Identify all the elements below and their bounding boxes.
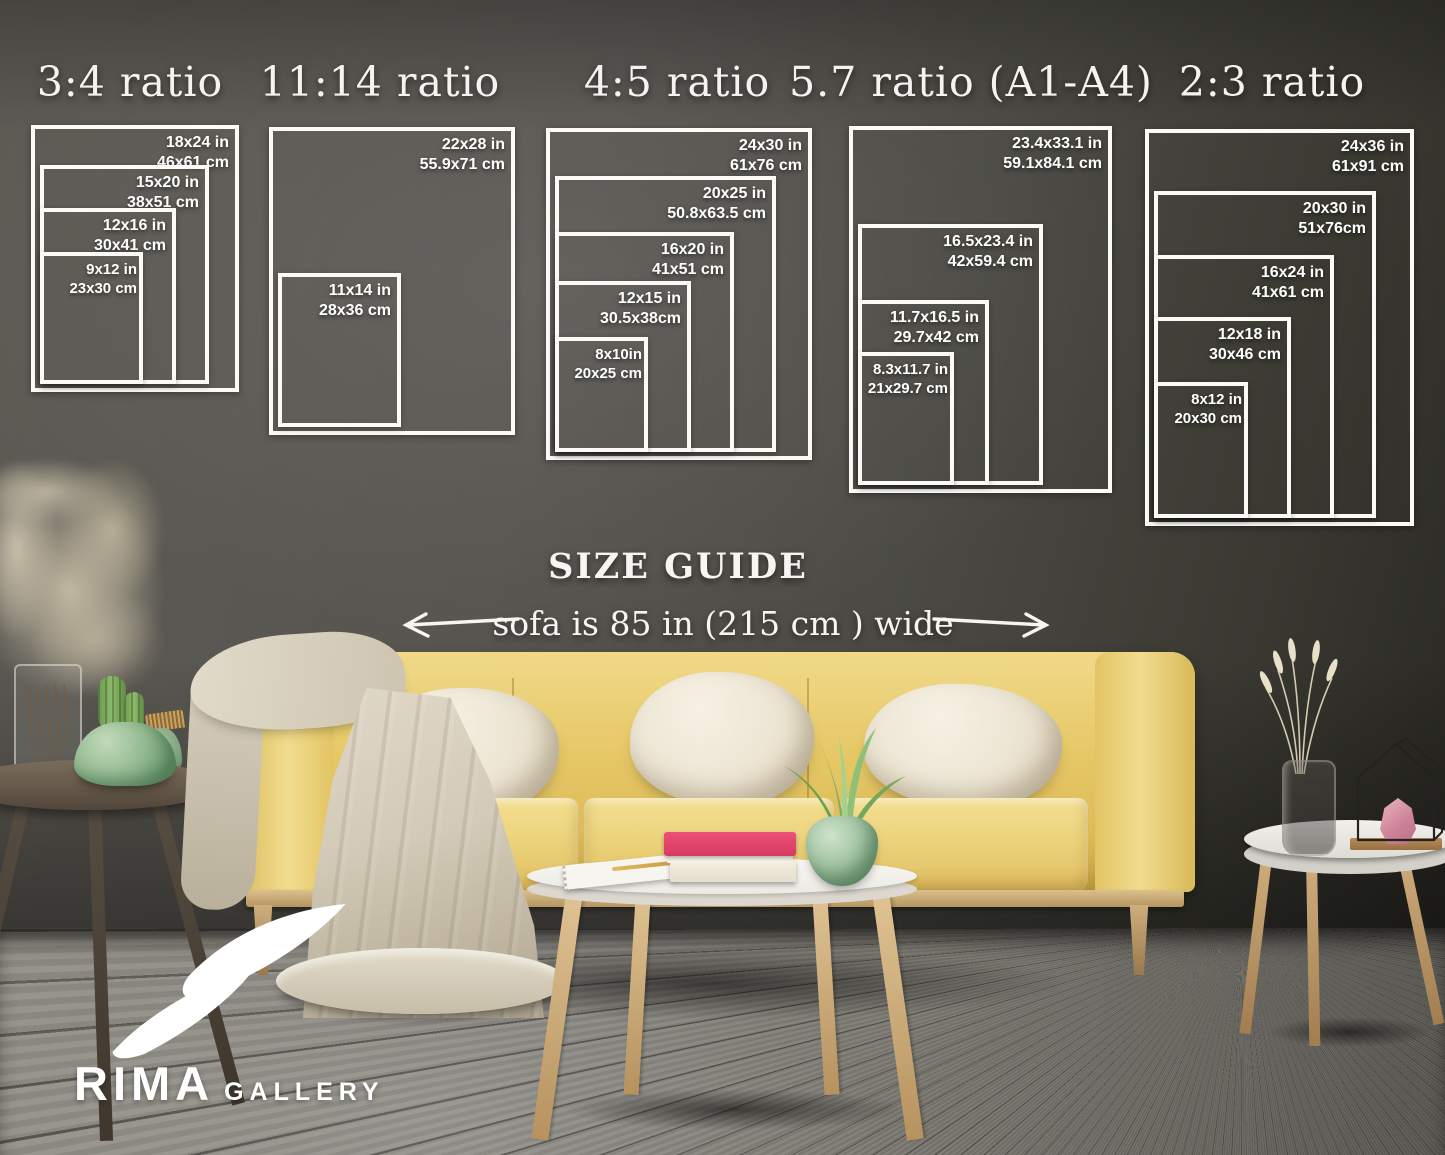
size-label: 20x30 in 51x76cm bbox=[1298, 199, 1366, 240]
size-label-inches: 8x12 in bbox=[1174, 390, 1242, 409]
size-label: 20x25 in 50.8x63.5 cm bbox=[667, 184, 766, 225]
ratio-heading: 5.7 ratio (A1-A4) bbox=[789, 58, 1153, 110]
size-label-inches: 11.7x16.5 in bbox=[890, 308, 979, 328]
size-label: 8.3x11.7 in 21x29.7 cm bbox=[868, 360, 948, 398]
size-label-inches: 18x24 in bbox=[157, 133, 229, 153]
size-label-cm: 55.9x71 cm bbox=[420, 155, 505, 175]
size-label-inches: 8x10in bbox=[574, 345, 642, 364]
size-label-cm: 50.8x63.5 cm bbox=[667, 204, 766, 224]
size-label: 16x20 in 41x51 cm bbox=[652, 240, 724, 281]
logo-suffix-text: GALLERY bbox=[224, 1078, 385, 1107]
wheat-stalks bbox=[1240, 636, 1360, 776]
size-label-inches: 12x15 in bbox=[600, 289, 681, 309]
width-arrows bbox=[398, 606, 1054, 646]
ratio-group: 23.4x33.1 in 59.1x84.1 cm 16.5x23.4 in 4… bbox=[849, 126, 1112, 493]
book bbox=[664, 832, 796, 856]
brand-logo: RIMA GALLERY bbox=[68, 898, 538, 1108]
size-frame: 9x12 in 23x30 cm bbox=[40, 252, 143, 384]
ratio-heading: 3:4 ratio bbox=[37, 58, 223, 110]
size-frame: 8x10in 20x25 cm bbox=[555, 337, 648, 452]
wire-house-frame bbox=[1348, 736, 1444, 848]
size-frame: 8.3x11.7 in 21x29.7 cm bbox=[858, 352, 954, 485]
size-label: 12x16 in 30x41 cm bbox=[94, 216, 166, 257]
size-label-cm: 41x61 cm bbox=[1252, 283, 1324, 303]
pampas-grass bbox=[0, 458, 165, 698]
size-label: 12x15 in 30.5x38cm bbox=[600, 289, 681, 330]
size-label-cm: 21x29.7 cm bbox=[868, 379, 948, 398]
size-label-cm: 61x76 cm bbox=[730, 156, 802, 176]
size-label: 9x12 in 23x30 cm bbox=[69, 260, 137, 298]
ratio-group: 18x24 in 46x61 cm 15x20 in 38x51 cm 12x1… bbox=[31, 125, 239, 392]
ratio-group: 24x36 in 61x91 cm 20x30 in 51x76cm 16x24… bbox=[1145, 129, 1414, 526]
size-label-cm: 42x59.4 cm bbox=[943, 252, 1033, 272]
size-label-inches: 8.3x11.7 in bbox=[868, 360, 948, 379]
size-label-inches: 16x20 in bbox=[652, 240, 724, 260]
size-label-inches: 12x16 in bbox=[94, 216, 166, 236]
size-label-inches: 16x24 in bbox=[1252, 263, 1324, 283]
size-label-cm: 20x25 cm bbox=[574, 364, 642, 383]
size-label: 24x36 in 61x91 cm bbox=[1332, 137, 1404, 178]
size-label-inches: 16.5x23.4 in bbox=[943, 232, 1033, 252]
logo-swoosh-icon bbox=[104, 902, 354, 1060]
coffee-table-shadow bbox=[505, 1082, 965, 1137]
size-label: 11.7x16.5 in 29.7x42 cm bbox=[890, 308, 979, 349]
size-label-cm: 23x30 cm bbox=[69, 279, 137, 298]
book bbox=[670, 860, 796, 882]
size-frame: 8x12 in 20x30 cm bbox=[1154, 382, 1248, 518]
ratio-heading: 2:3 ratio bbox=[1179, 58, 1365, 110]
dried-stems bbox=[26, 684, 68, 770]
size-label-cm: 30x46 cm bbox=[1209, 345, 1281, 365]
glass-bottle-vase bbox=[1282, 760, 1336, 856]
size-label-cm: 28x36 cm bbox=[319, 301, 391, 321]
right-arrow-icon bbox=[934, 614, 1046, 636]
size-label: 8x12 in 20x30 cm bbox=[1174, 390, 1242, 428]
size-label-inches: 9x12 in bbox=[69, 260, 137, 279]
size-label-inches: 11x14 in bbox=[319, 281, 391, 301]
sofa-armrest-right bbox=[1095, 652, 1195, 892]
left-arrow-icon bbox=[406, 614, 518, 636]
size-label-inches: 23.4x33.1 in bbox=[1003, 134, 1102, 154]
size-label: 12x18 in 30x46 cm bbox=[1209, 325, 1281, 366]
ratio-heading: 11:14 ratio bbox=[260, 58, 501, 110]
size-label: 24x30 in 61x76 cm bbox=[730, 136, 802, 177]
size-label: 22x28 in 55.9x71 cm bbox=[420, 135, 505, 176]
size-label: 11x14 in 28x36 cm bbox=[319, 281, 391, 322]
size-guide-title: SIZE GUIDE bbox=[548, 546, 808, 587]
size-label: 8x10in 20x25 cm bbox=[574, 345, 642, 383]
size-label-cm: 61x91 cm bbox=[1332, 157, 1404, 177]
size-label-cm: 20x30 cm bbox=[1174, 409, 1242, 428]
size-label: 23.4x33.1 in 59.1x84.1 cm bbox=[1003, 134, 1102, 175]
size-label-inches: 15x20 in bbox=[127, 173, 199, 193]
size-label-cm: 41x51 cm bbox=[652, 260, 724, 280]
logo-brand-text: RIMA bbox=[74, 1056, 214, 1111]
size-label-inches: 24x36 in bbox=[1332, 137, 1404, 157]
size-label: 16.5x23.4 in 42x59.4 cm bbox=[943, 232, 1033, 273]
poster-mockup: 3:4 ratio 11:14 ratio 4:5 ratio 5.7 rati… bbox=[0, 0, 1445, 1155]
size-label-inches: 22x28 in bbox=[420, 135, 505, 155]
size-label: 16x24 in 41x61 cm bbox=[1252, 263, 1324, 304]
size-label-inches: 20x30 in bbox=[1298, 199, 1366, 219]
size-label-inches: 20x25 in bbox=[667, 184, 766, 204]
size-label-cm: 51x76cm bbox=[1298, 219, 1366, 239]
size-label-inches: 24x30 in bbox=[730, 136, 802, 156]
ratio-heading: 4:5 ratio bbox=[584, 58, 770, 110]
size-frame: 11x14 in 28x36 cm bbox=[278, 273, 401, 427]
ratio-group: 22x28 in 55.9x71 cm 11x14 in 28x36 cm bbox=[269, 127, 515, 435]
size-label-cm: 59.1x84.1 cm bbox=[1003, 154, 1102, 174]
stool-shadow bbox=[1240, 1012, 1445, 1052]
ratio-group: 24x30 in 61x76 cm 20x25 in 50.8x63.5 cm … bbox=[546, 128, 812, 460]
size-label-inches: 12x18 in bbox=[1209, 325, 1281, 345]
size-label-cm: 30.5x38cm bbox=[600, 309, 681, 329]
size-label-cm: 29.7x42 cm bbox=[890, 328, 979, 348]
